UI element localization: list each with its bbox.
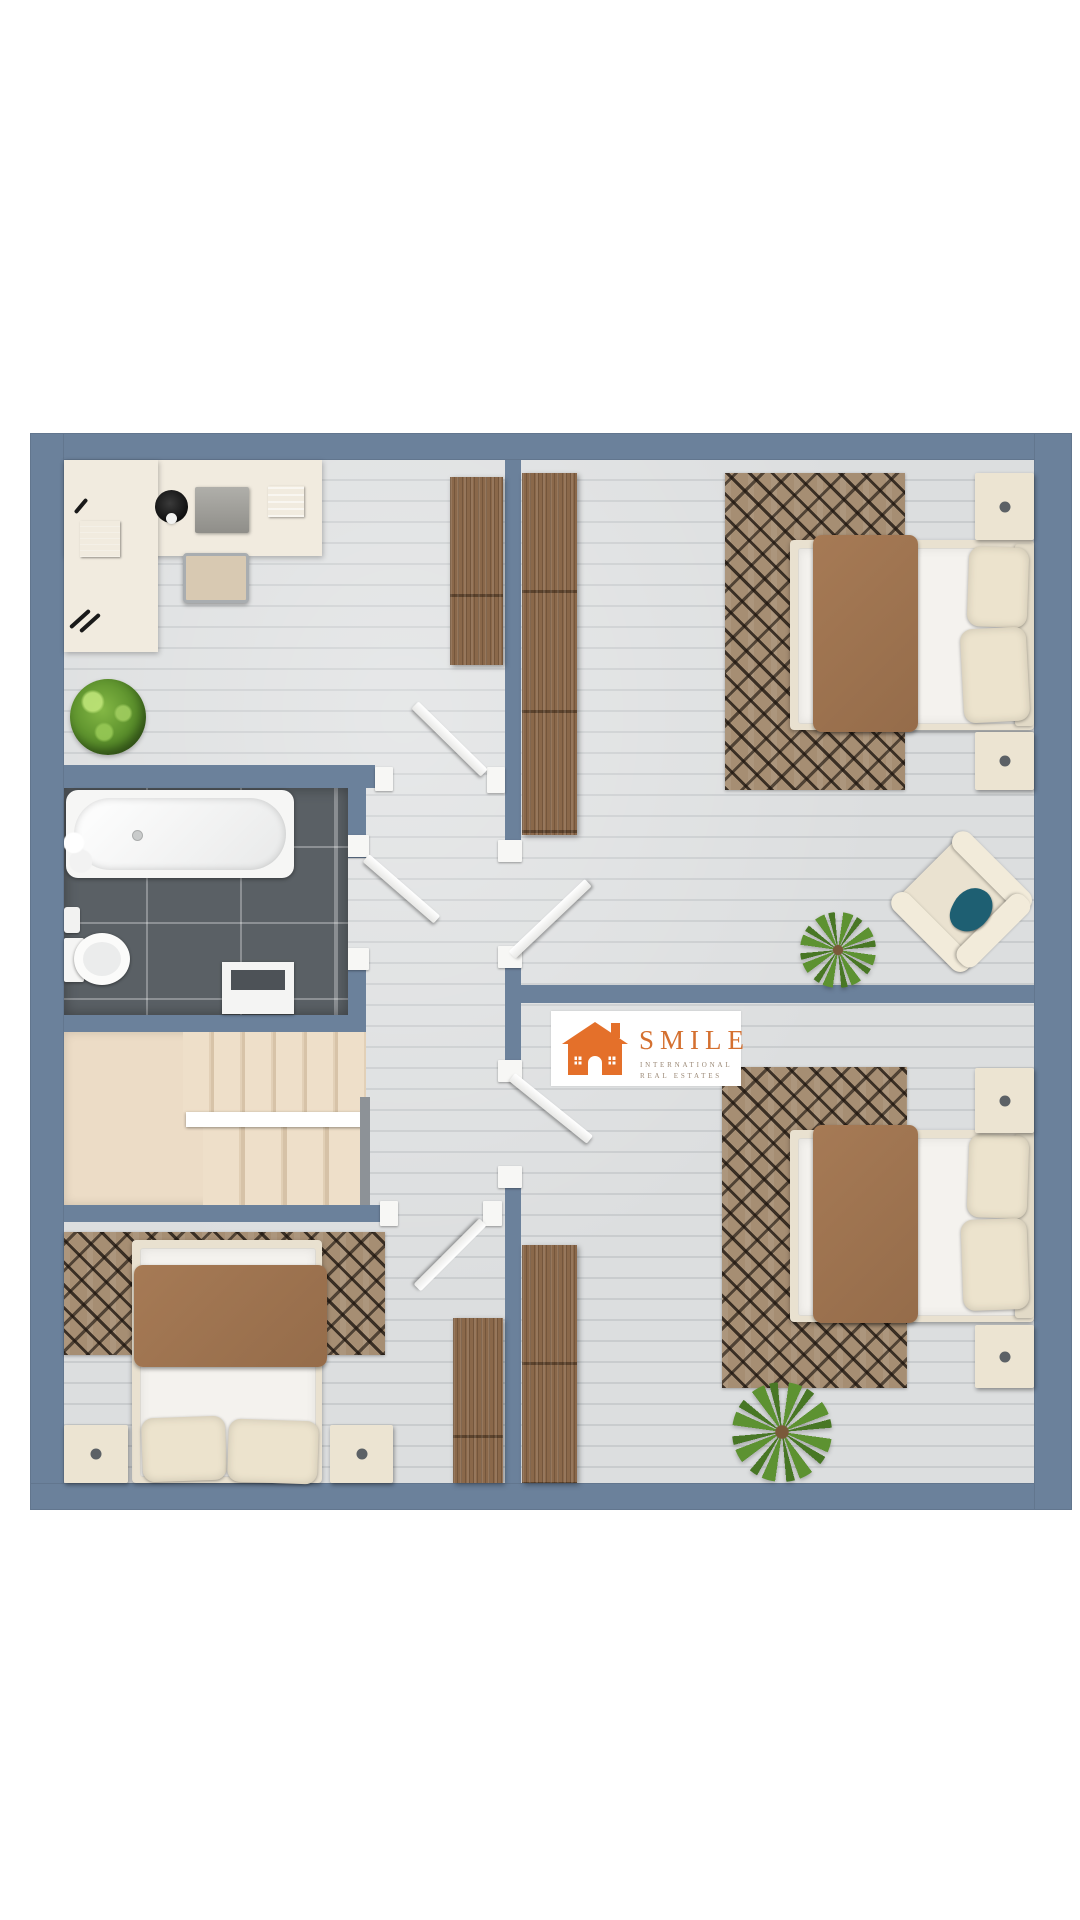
wall-bedrooms-divider [521, 985, 1034, 1003]
wall-bathroom-bottom [64, 1015, 366, 1032]
drawer-knob [999, 501, 1010, 512]
wall-center-upper [505, 460, 521, 845]
blanket [813, 535, 918, 732]
floor-plant [732, 1382, 832, 1482]
pillow [960, 626, 1031, 723]
house-window [573, 1055, 583, 1066]
bathtub-basin [74, 798, 286, 870]
hallway-floor [366, 788, 505, 1222]
pillow [227, 1418, 319, 1484]
door-frame [498, 840, 522, 862]
office-room [64, 460, 505, 765]
cabinet-opening [231, 970, 285, 990]
bathroom-cabinet [222, 962, 294, 1014]
door-frame [498, 1166, 522, 1188]
wall-outer-right [1034, 433, 1072, 1510]
bed [790, 540, 1034, 730]
stair-steps-upper-flight [183, 1032, 366, 1112]
floor-plan: SMILE INTERNATIONAL REAL ESTATES [30, 433, 1072, 1510]
nightstand [975, 732, 1034, 790]
office-chair [183, 553, 249, 603]
drawer-knob [999, 1095, 1010, 1106]
house-body [568, 1043, 622, 1075]
magazine [268, 486, 304, 517]
door-frame [375, 767, 393, 791]
armchair [892, 832, 1033, 973]
toilet-paper-holder [64, 907, 80, 933]
pillow [141, 1416, 227, 1483]
bed [132, 1240, 322, 1483]
stair-handrail [360, 1097, 370, 1205]
brand-name: SMILE [639, 1025, 750, 1056]
bedroom-top-right [521, 460, 1034, 985]
bathtub-drain [132, 830, 143, 841]
nightstand [64, 1425, 128, 1483]
door-frame [487, 767, 505, 793]
watermark-logo: SMILE INTERNATIONAL REAL ESTATES [551, 1011, 741, 1086]
house-window [607, 1055, 617, 1066]
pillow [967, 1134, 1030, 1219]
wall-outer-top [30, 433, 1072, 460]
blanket [813, 1125, 918, 1323]
brand-subtitle-line2: REAL ESTATES [640, 1072, 722, 1080]
pillow [960, 1218, 1029, 1311]
nightstand [975, 1068, 1034, 1133]
bedroom-bottom-left [64, 1222, 505, 1483]
drawer-knob [356, 1449, 367, 1460]
wall-outer-left [30, 433, 64, 1510]
house-door [588, 1056, 602, 1075]
staircase [64, 1032, 366, 1205]
pillow [967, 546, 1030, 628]
stair-steps-lower-flight [203, 1127, 366, 1205]
wall-bathroom-top [64, 765, 375, 788]
drawer-knob [999, 1351, 1010, 1362]
toilet-bowl [74, 933, 130, 985]
stair-railing [186, 1112, 365, 1127]
house-icon [565, 1022, 625, 1075]
blanket [134, 1265, 327, 1367]
house-roof [562, 1022, 628, 1044]
toiletry-bottles [64, 829, 92, 875]
wall-center-lower [505, 1168, 521, 1483]
bed [790, 1130, 1034, 1322]
laptop [195, 487, 249, 533]
wall-outer-bottom [30, 1483, 1072, 1510]
page-background: { "logo": { "brand": "SMILE", "subtitle_… [0, 0, 1080, 1920]
brand-subtitle-line1: INTERNATIONAL [640, 1061, 732, 1069]
nightstand [330, 1425, 393, 1483]
floor-plant [800, 912, 876, 988]
bathroom [64, 788, 348, 1015]
potted-plant [70, 679, 146, 755]
drawer-knob [999, 756, 1010, 767]
nightstand [975, 473, 1034, 540]
drawer-knob [91, 1449, 102, 1460]
wall-stairs-bottom [64, 1205, 380, 1222]
lamp-bulb [166, 513, 177, 524]
notebook [80, 521, 120, 557]
nightstand [975, 1325, 1034, 1388]
bathtub [66, 790, 294, 878]
wall-center-middle [505, 955, 521, 1072]
